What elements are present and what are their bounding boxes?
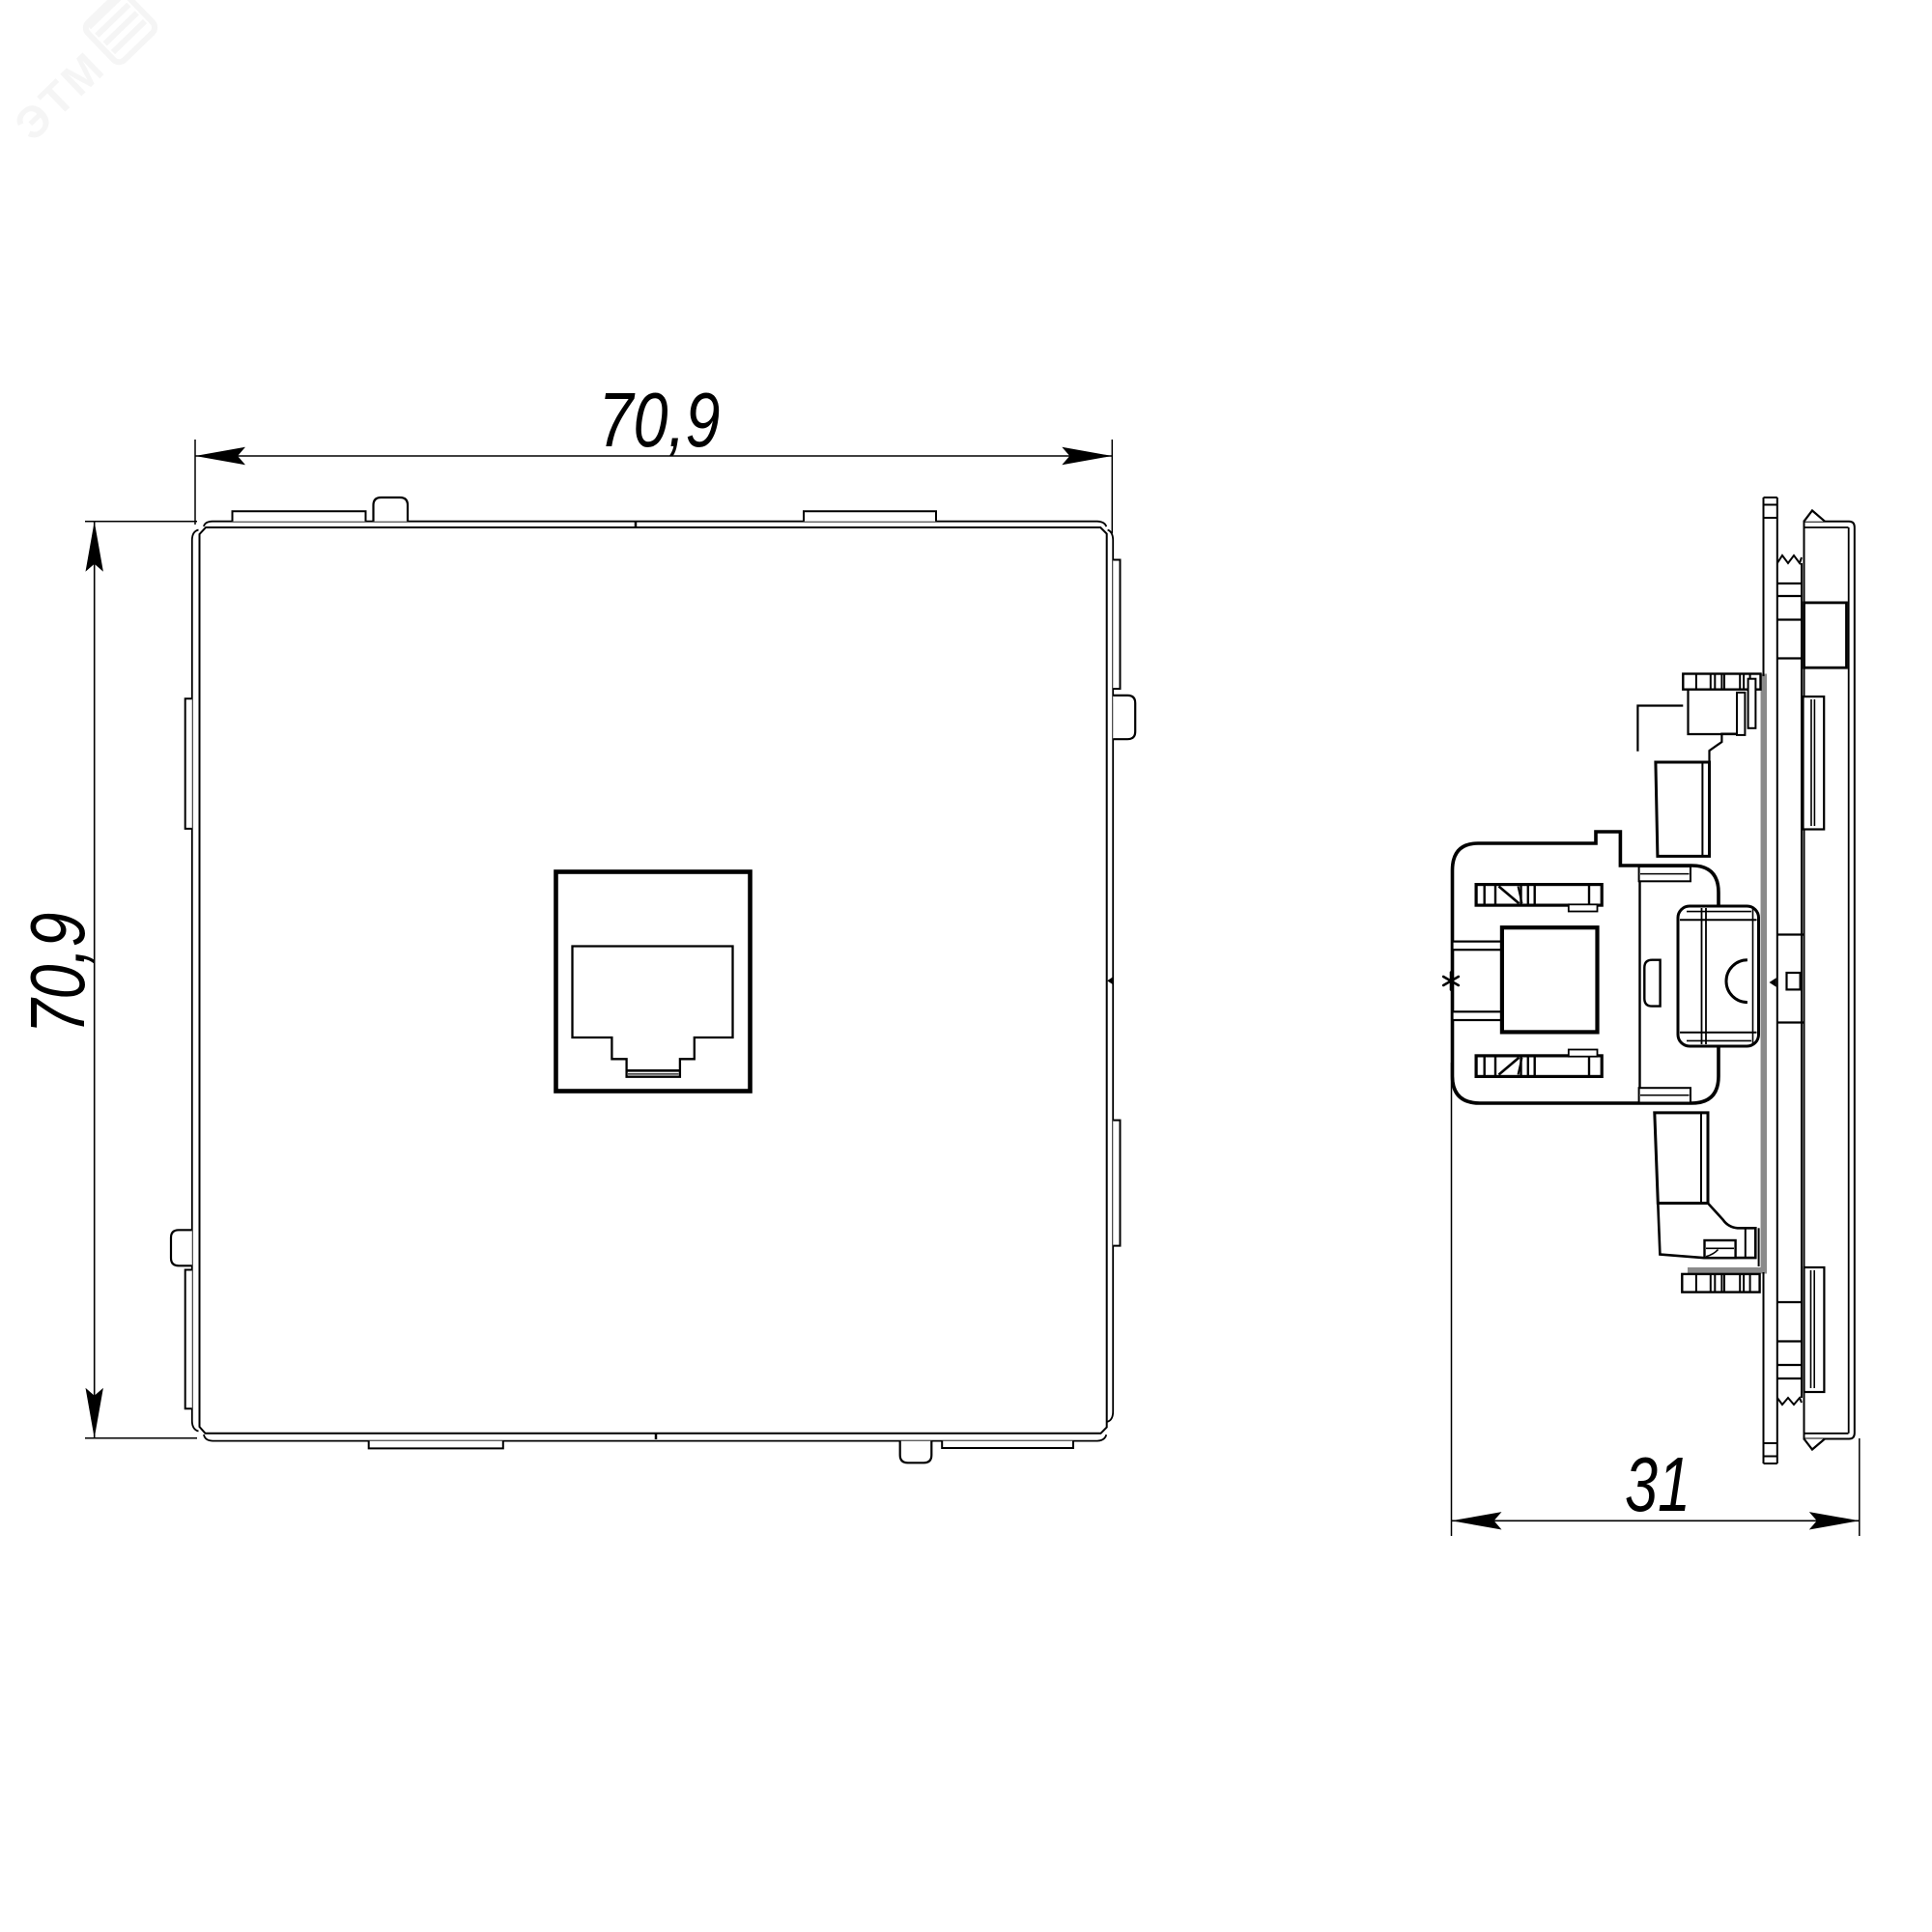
svg-text:70,9: 70,9 — [599, 377, 721, 463]
svg-text:31: 31 — [1625, 1441, 1690, 1527]
svg-text:70,9: 70,9 — [14, 913, 100, 1035]
